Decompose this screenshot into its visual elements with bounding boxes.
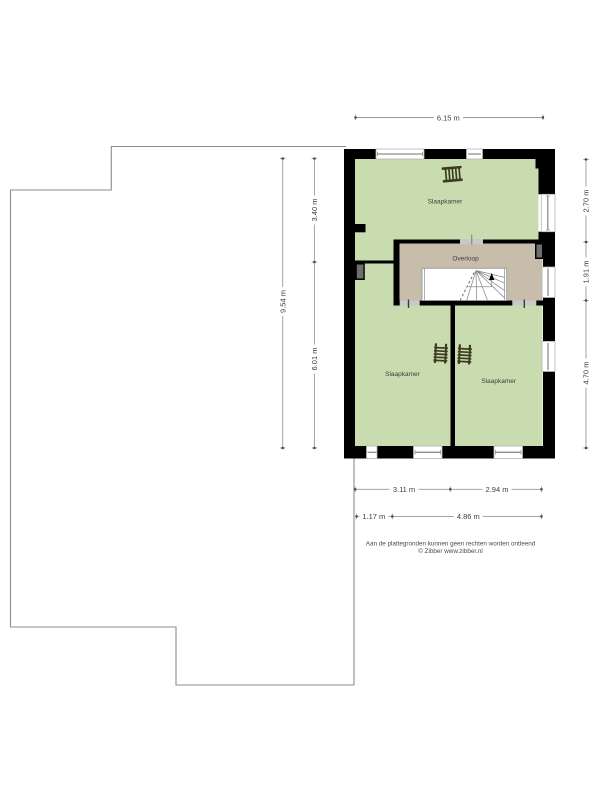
svg-text:9.54 m: 9.54 m [278,290,287,313]
svg-text:2.94 m: 2.94 m [486,485,509,494]
svg-text:3.11 m: 3.11 m [393,485,415,494]
svg-text:4.86 m: 4.86 m [457,512,480,521]
svg-text:© Zibber www.zibber.nl: © Zibber www.zibber.nl [418,547,482,555]
svg-text:Overloop: Overloop [452,255,479,262]
svg-text:1.91 m: 1.91 m [582,261,591,284]
svg-text:Aan de plattegronden kunnen ge: Aan de plattegronden kunnen geen rechten… [366,541,536,548]
svg-text:6.15 m: 6.15 m [437,113,460,122]
svg-text:Slaapkamer: Slaapkamer [481,378,517,385]
svg-text:4.70 m: 4.70 m [582,362,591,385]
svg-text:1.17 m: 1.17 m [362,512,385,521]
svg-text:Slaapkamer: Slaapkamer [428,198,464,205]
svg-text:Slaapkamer: Slaapkamer [385,371,421,378]
svg-text:3.40 m: 3.40 m [310,199,319,222]
svg-text:2.70 m: 2.70 m [582,190,591,213]
svg-text:6.01 m: 6.01 m [310,348,319,371]
